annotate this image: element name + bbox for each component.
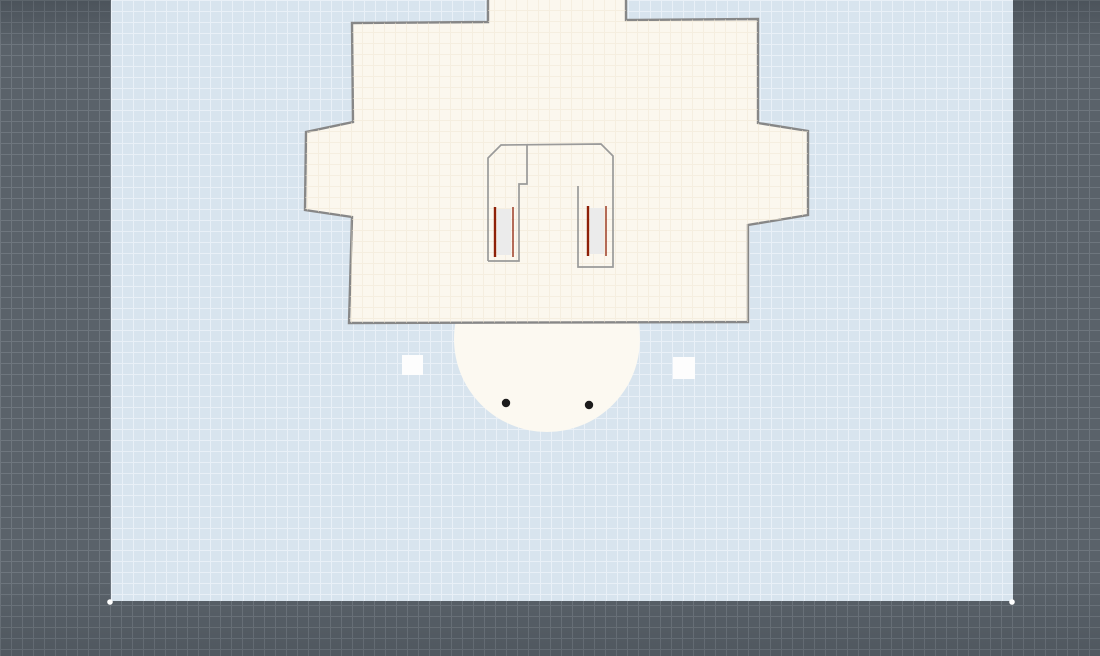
pivot-dot-right[interactable] [585, 401, 593, 409]
workspace-frame [0, 0, 1100, 656]
scene-svg [0, 0, 1100, 656]
slot-fill-right [590, 208, 604, 254]
marker-square-right[interactable] [673, 357, 695, 379]
part-body-grid-texture [305, 0, 808, 323]
slot-fill-left [497, 209, 511, 255]
canvas-corner-handle-right[interactable] [1009, 599, 1015, 605]
pivot-dot-left[interactable] [502, 399, 510, 407]
canvas-corner-handle-left[interactable] [107, 599, 113, 605]
marker-square-left[interactable] [402, 355, 423, 375]
